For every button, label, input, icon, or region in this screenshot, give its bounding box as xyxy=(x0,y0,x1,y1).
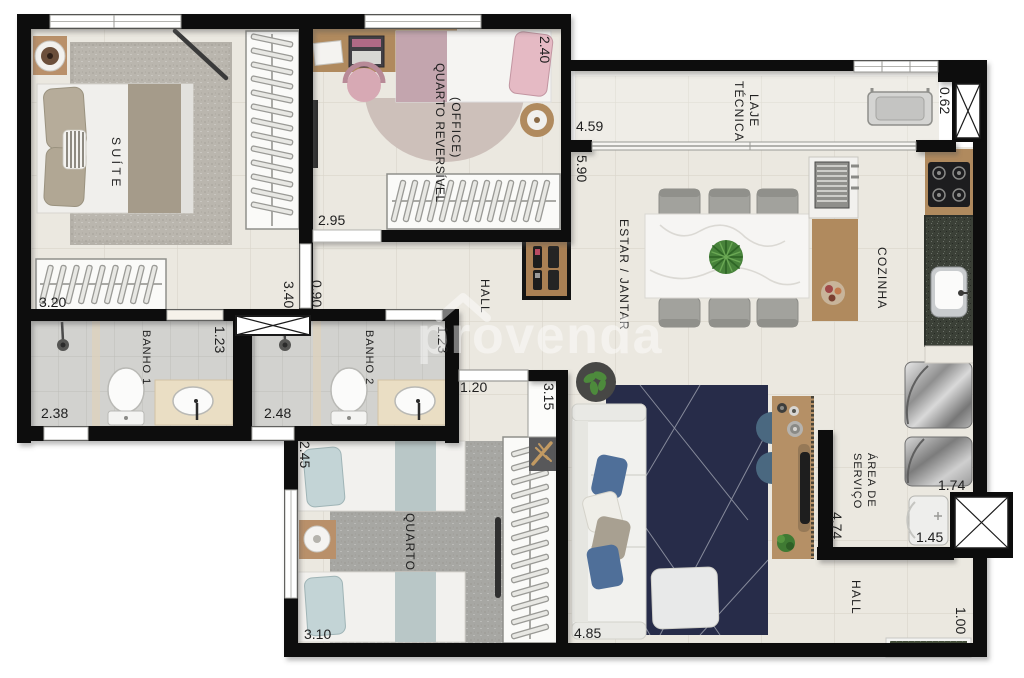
svg-text:1.74: 1.74 xyxy=(938,477,965,493)
svg-text:4.85: 4.85 xyxy=(574,625,601,641)
svg-text:(OFFICE): (OFFICE) xyxy=(449,97,463,159)
svg-text:SUÍTE: SUÍTE xyxy=(109,137,124,190)
svg-text:5.90: 5.90 xyxy=(574,155,590,182)
svg-text:BANHO 2: BANHO 2 xyxy=(363,330,375,385)
svg-text:2.38: 2.38 xyxy=(41,405,68,421)
svg-text:0.62: 0.62 xyxy=(937,87,953,114)
svg-text:2.40: 2.40 xyxy=(537,36,553,63)
svg-text:COZINHA: COZINHA xyxy=(875,247,889,309)
svg-text:1.20: 1.20 xyxy=(460,379,487,395)
svg-text:4.59: 4.59 xyxy=(576,118,603,134)
svg-text:2.45: 2.45 xyxy=(297,441,313,468)
svg-text:2.48: 2.48 xyxy=(264,405,291,421)
svg-text:provenda: provenda xyxy=(417,307,663,365)
svg-text:ÁREA DE: ÁREA DE xyxy=(865,453,878,508)
svg-text:SERVIÇO: SERVIÇO xyxy=(851,453,863,509)
svg-text:1.45: 1.45 xyxy=(916,529,943,545)
svg-text:0.90: 0.90 xyxy=(309,280,325,307)
svg-text:1.00: 1.00 xyxy=(953,607,969,634)
svg-text:4.74: 4.74 xyxy=(829,512,845,539)
svg-text:3.40: 3.40 xyxy=(281,281,297,308)
svg-text:QUARTO REVERSÍVEL: QUARTO REVERSÍVEL xyxy=(433,63,448,203)
svg-text:2.95: 2.95 xyxy=(318,212,345,228)
svg-text:TÉCNICA: TÉCNICA xyxy=(732,81,747,142)
svg-text:3.15: 3.15 xyxy=(541,383,557,410)
svg-text:HALL: HALL xyxy=(849,580,863,615)
svg-text:LAJE: LAJE xyxy=(747,94,761,127)
svg-text:1.23: 1.23 xyxy=(212,326,228,353)
svg-text:3.20: 3.20 xyxy=(39,294,66,310)
svg-text:3.10: 3.10 xyxy=(304,626,331,642)
svg-text:QUARTO: QUARTO xyxy=(403,513,417,571)
svg-text:BANHO 1: BANHO 1 xyxy=(140,330,152,385)
